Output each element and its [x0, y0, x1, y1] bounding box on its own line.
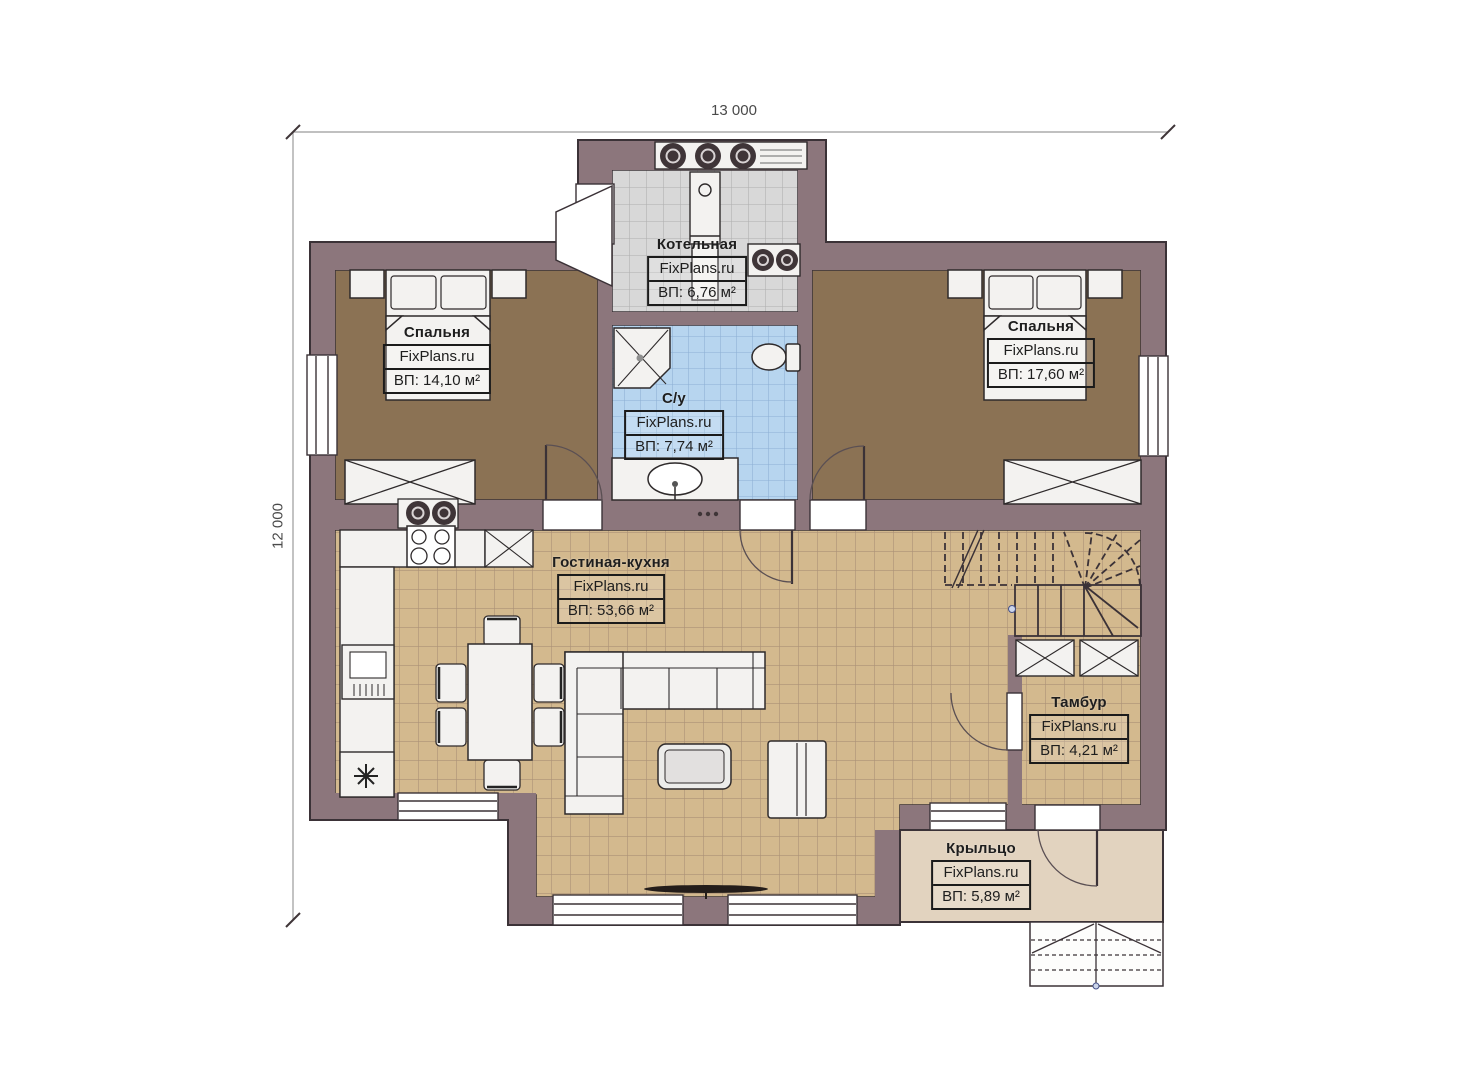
window-living-right — [728, 895, 857, 925]
sink-symbol — [398, 499, 458, 528]
room-label-bathroom: С/у FixPlans.ru ВП: 7,74 м² — [624, 390, 724, 460]
nightstand-symbol — [492, 270, 526, 298]
room-area: ВП: 53,66 м² — [559, 600, 663, 622]
room-name: С/у — [624, 390, 724, 407]
nightstand-symbol — [948, 270, 982, 298]
kitchen-cabinet-symbol — [485, 530, 533, 567]
wardrobe-symbol — [1080, 640, 1138, 676]
dimension-height-label: 12 000 — [270, 503, 287, 549]
brand-watermark: FixPlans.ru — [649, 258, 745, 282]
brand-watermark: FixPlans.ru — [989, 340, 1093, 364]
wall-dots — [698, 512, 718, 516]
window-bedroom-right — [1139, 356, 1168, 456]
room-area: ВП: 6,76 м² — [649, 282, 745, 304]
room-info-box: FixPlans.ru ВП: 14,10 м² — [383, 344, 491, 394]
room-name: Спальня — [383, 324, 491, 341]
shower-symbol — [614, 328, 670, 388]
room-area: ВП: 5,89 м² — [933, 886, 1029, 908]
armchair-symbol — [768, 741, 826, 818]
chair-symbol — [484, 616, 520, 646]
room-area: ВП: 17,60 м² — [989, 364, 1093, 386]
water-tanks-symbol — [748, 244, 800, 276]
window-porch — [930, 803, 1006, 830]
wardrobe-symbol — [1016, 640, 1074, 676]
dining-table-symbol — [468, 644, 532, 760]
room-info-box: FixPlans.ru ВП: 7,74 м² — [624, 410, 724, 460]
window-bedroom-left — [307, 355, 337, 455]
floor-plan-drawing — [0, 0, 1473, 1080]
room-label-bedroom-left: Спальня FixPlans.ru ВП: 14,10 м² — [383, 324, 491, 394]
chair-symbol — [534, 708, 564, 746]
room-info-box: FixPlans.ru ВП: 17,60 м² — [987, 338, 1095, 388]
room-label-boiler: Котельная FixPlans.ru ВП: 6,76 м² — [647, 236, 747, 306]
room-name: Котельная — [647, 236, 747, 253]
chair-symbol — [436, 664, 466, 702]
chair-symbol — [534, 664, 564, 702]
floor-plan-canvas: 13 000 12 000 Котельная FixPlans.ru ВП: … — [0, 0, 1473, 1080]
room-area: ВП: 4,21 м² — [1031, 740, 1127, 762]
brand-watermark: FixPlans.ru — [559, 576, 663, 600]
room-label-vestibule: Тамбур FixPlans.ru ВП: 4,21 м² — [1029, 694, 1129, 764]
room-area: ВП: 14,10 м² — [385, 370, 489, 392]
dishwasher-symbol — [342, 645, 394, 699]
room-info-box: FixPlans.ru ВП: 6,76 м² — [647, 256, 747, 306]
dimension-width-label: 13 000 — [711, 102, 757, 119]
room-name: Крыльцо — [931, 840, 1031, 857]
room-info-box: FixPlans.ru ВП: 5,89 м² — [931, 860, 1031, 910]
room-name: Гостиная-кухня — [552, 554, 670, 571]
room-name: Тамбур — [1029, 694, 1129, 711]
room-area: ВП: 7,74 м² — [626, 436, 722, 458]
wardrobe-symbol — [1004, 460, 1141, 504]
room-label-porch: Крыльцо FixPlans.ru ВП: 5,89 м² — [931, 840, 1031, 910]
window-kitchen — [398, 793, 498, 820]
room-label-living-kitchen: Гостиная-кухня FixPlans.ru ВП: 53,66 м² — [552, 554, 670, 624]
coffee-table-symbol — [658, 744, 731, 789]
brand-watermark: FixPlans.ru — [1031, 716, 1127, 740]
wardrobe-symbol — [345, 460, 475, 504]
fridge-symbol — [340, 752, 394, 797]
brand-watermark: FixPlans.ru — [385, 346, 489, 370]
brand-watermark: FixPlans.ru — [933, 862, 1029, 886]
nightstand-symbol — [1088, 270, 1122, 298]
room-info-box: FixPlans.ru ВП: 4,21 м² — [1029, 714, 1129, 764]
window-living-left — [553, 895, 683, 925]
chair-symbol — [484, 760, 520, 790]
porch-steps — [1030, 922, 1163, 989]
vanity-sink-symbol — [612, 458, 738, 500]
stove-symbol — [407, 526, 455, 567]
brand-watermark: FixPlans.ru — [626, 412, 722, 436]
toilet-symbol — [752, 344, 800, 371]
room-info-box: FixPlans.ru ВП: 53,66 м² — [557, 574, 665, 624]
room-label-bedroom-right: Спальня FixPlans.ru ВП: 17,60 м² — [987, 318, 1095, 388]
chair-symbol — [436, 708, 466, 746]
room-name: Спальня — [987, 318, 1095, 335]
boiler-counter-symbol — [655, 142, 807, 169]
nightstand-symbol — [350, 270, 384, 298]
